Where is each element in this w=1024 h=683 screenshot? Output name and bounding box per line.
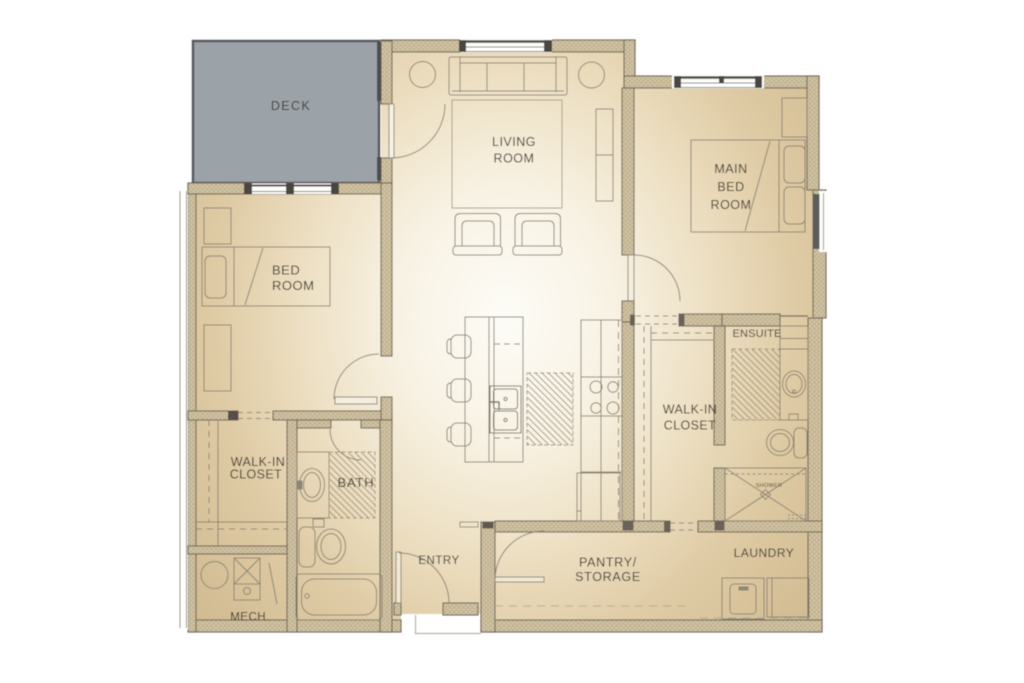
svg-text:WALK-IN: WALK-IN xyxy=(663,403,717,417)
svg-text:ROOM: ROOM xyxy=(494,152,535,166)
svg-text:LIVING: LIVING xyxy=(492,135,536,149)
svg-text:BED: BED xyxy=(717,180,744,194)
svg-text:BED: BED xyxy=(272,263,300,278)
svg-text:ROOM: ROOM xyxy=(272,278,314,293)
svg-text:BATH: BATH xyxy=(338,475,375,490)
svg-text:STORAGE: STORAGE xyxy=(575,570,641,584)
svg-text:PANTRY/: PANTRY/ xyxy=(579,556,637,570)
svg-text:DECK: DECK xyxy=(271,99,311,113)
svg-text:SHOWER: SHOWER xyxy=(756,483,783,489)
svg-text:LAUNDRY: LAUNDRY xyxy=(734,546,795,560)
svg-text:CLOSET: CLOSET xyxy=(664,419,716,433)
svg-text:ROOM: ROOM xyxy=(711,198,752,212)
svg-text:ENSUITE: ENSUITE xyxy=(732,328,781,340)
svg-text:ENTRY: ENTRY xyxy=(418,555,459,567)
svg-text:MECH.: MECH. xyxy=(230,612,270,624)
svg-text:MAIN: MAIN xyxy=(714,162,747,176)
svg-text:CLOSET: CLOSET xyxy=(230,468,282,482)
